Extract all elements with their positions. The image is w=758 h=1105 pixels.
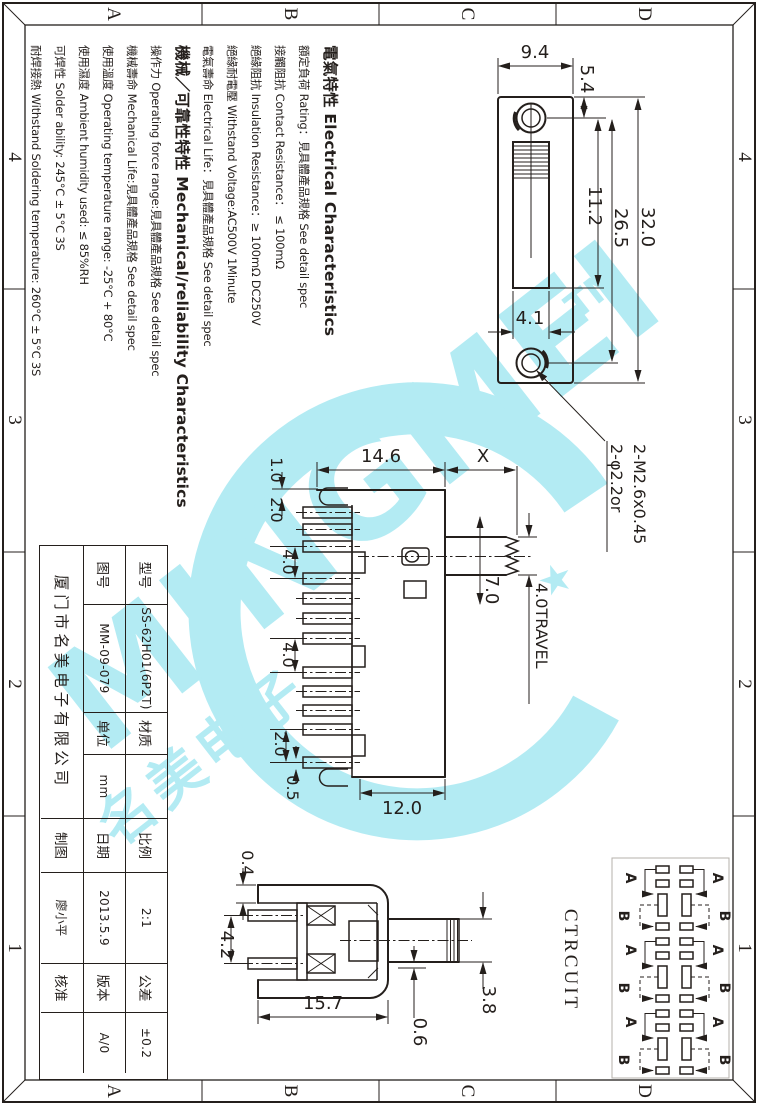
dim-front-slider-width: 4.1 <box>516 308 545 329</box>
grid-label-bottom-c: C <box>457 1085 478 1098</box>
drawing-number-value: MM-09-079 <box>83 605 125 713</box>
dim-section-4: 0.6 <box>409 1018 430 1047</box>
pole-label-b: B <box>615 911 631 922</box>
hole-note-line1: 2-φ2.2or <box>607 444 626 513</box>
spec-line: 操作力 Operating force range:見具體產品規格 See de… <box>144 45 168 477</box>
material-value <box>125 755 167 819</box>
pole-label-b: B <box>615 1055 631 1066</box>
pole-label-a: A <box>622 945 638 956</box>
grid-label-left-2: 2 <box>4 679 25 689</box>
hole-note-line2: 2-M2.6x0.45 <box>630 444 649 544</box>
terminal-pins <box>296 507 360 768</box>
pole-label-b: B <box>716 911 732 922</box>
date-value: 2013.5.9 <box>83 873 125 964</box>
title-block-label-drawing-no: 图号 <box>83 546 125 605</box>
grid-label-left-1: 1 <box>4 943 25 953</box>
title-block-label-unit: 单位 <box>83 713 125 755</box>
spec-line: 接觸阻抗 Contact Resistance： ≤ 100mΩ <box>268 45 292 477</box>
pole-label-b: B <box>615 983 631 994</box>
dim-side-6: 0.5 <box>283 775 302 800</box>
dim-front-hole-offset: 5.4 <box>576 65 597 94</box>
actuator-knurl-zigzag <box>506 537 518 575</box>
dim-side-width: 14.6 <box>361 446 401 467</box>
scale-value: 2:1 <box>125 873 167 964</box>
spec-line: 絕緣耐電壓 Withstand Voltage:AC500V 1Minute <box>220 45 244 477</box>
front-view-drawing: 9.4 5.4 11.2 26.5 32.0 4.1 2-φ2.2or 2-M2… <box>488 42 658 552</box>
title-block-label-tolerance: 公差 <box>125 964 167 1013</box>
tolerance-value: ±0.2 <box>125 1013 167 1073</box>
contact-terminals <box>307 906 335 973</box>
dim-side-5: 2.0 <box>271 731 290 756</box>
grid-label-top-b: B <box>280 8 301 21</box>
spec-line: 可焊性 Solder ability: 245°C ± 5°C 3S <box>48 45 72 477</box>
grid-label-top-a: A <box>103 7 124 21</box>
engineering-drawing-sheet: MINGMEI TM 名美电子 ★ <box>0 0 758 1105</box>
revision-value: A/0 <box>83 1013 125 1073</box>
dim-front-width: 9.4 <box>521 42 550 63</box>
pole-label-a: A <box>622 1017 638 1028</box>
spec-heading-mechanical: 機械／可靠性特性 Mechanical/reliability Characte… <box>168 45 196 477</box>
pole-label-a: A <box>709 945 725 956</box>
pole-label-b: B <box>716 1055 732 1066</box>
pole-label-b: B <box>716 983 732 994</box>
grid-label-top-d: D <box>634 7 655 21</box>
dim-section-1: 0.4 <box>238 850 257 875</box>
dim-front-slot: 11.2 <box>584 186 605 226</box>
grid-label-right-4: 4 <box>734 152 755 162</box>
grid-label-right-3: 3 <box>734 415 755 425</box>
title-block: 型号 SS-62H01(6P2T) 材质 比例 2:1 公差 ±0.2 图号 M… <box>39 545 168 1080</box>
pole-label-a: A <box>709 1017 725 1028</box>
pole-label-a: A <box>622 873 638 884</box>
circuit-diagram: CTRCUIT A B A B A B A B A B A B <box>560 858 732 1078</box>
dim-side-travel: 4.0TRAVEL <box>532 583 551 669</box>
dim-side-3: 4.0 <box>279 549 298 574</box>
spec-heading-electrical: 電氣特性 Electrical Characteristics <box>316 45 344 477</box>
grid-label-bottom-d: D <box>634 1084 655 1098</box>
title-block-label-revision: 版本 <box>83 964 125 1013</box>
dim-side-4: 4.0 <box>279 642 298 667</box>
dim-section-3: 15.7 <box>303 993 343 1014</box>
title-block-label-material: 材质 <box>125 713 167 755</box>
spec-line: 額定負荷 Rating：見具體產品規格 See detail spec <box>292 45 316 477</box>
spec-line: 使用濕度 Ambient humidity used: ≤ 85%RH <box>72 45 96 477</box>
spec-line: 電氣壽命 Electrical Life：見具體產品規格 See detail … <box>196 45 220 477</box>
dim-side-x: X <box>477 446 489 467</box>
dim-side-7: 7.0 <box>481 576 502 605</box>
company-name: 厦门市名美电子有限公司 <box>41 546 83 819</box>
circuit-title: CTRCUIT <box>560 909 581 1011</box>
dim-section-2: 4.2 <box>216 931 237 960</box>
section-view-drawing: 0.4 4.2 15.7 0.6 3.8 <box>216 850 499 1046</box>
dim-front-hole-span: 26.5 <box>610 208 631 248</box>
grid-label-right-2: 2 <box>734 679 755 689</box>
pole-label-a: A <box>709 873 725 884</box>
spec-line: 耐焊接熱 Withstand Soldering temperature: 26… <box>24 45 48 477</box>
unit-value: mm <box>83 755 125 819</box>
approved-by-value <box>41 1013 83 1073</box>
dim-side-2: 2.0 <box>267 497 286 522</box>
title-block-label-approved-by: 核准 <box>41 964 83 1013</box>
dim-section-5: 3.8 <box>478 986 499 1015</box>
grid-label-bottom-a: A <box>103 1084 124 1098</box>
dim-side-bottom-width: 12.0 <box>382 798 422 819</box>
side-view-drawing: 14.6 X 1.0 2.0 4.0 4.0 2.0 0.5 <box>267 446 551 819</box>
grid-label-bottom-b: B <box>280 1085 301 1098</box>
grid-label-right-1: 1 <box>734 943 755 953</box>
drawn-by-value: 廖小平 <box>41 873 83 964</box>
dim-front-height: 32.0 <box>637 207 658 247</box>
characteristics-spec-block: 電氣特性 Electrical Characteristics 額定負荷 Rat… <box>24 45 344 477</box>
title-block-label-drawn-by: 制图 <box>41 819 83 873</box>
title-block-label-scale: 比例 <box>125 819 167 873</box>
model-number-value: SS-62H01(6P2T) <box>125 605 167 713</box>
grid-label-left-4: 4 <box>4 152 25 162</box>
grid-label-top-c: C <box>457 8 478 21</box>
spec-line: 絕緣阻抗 Insulation Resistance：≥ 100mΩ DC250… <box>244 45 268 477</box>
spec-line: 機械壽命 Mechanical Life:見具體產品規格 See detail … <box>120 45 144 477</box>
spec-line: 使用溫度 Operating temperature range: -25°C … <box>96 45 120 477</box>
title-block-label-model: 型号 <box>125 546 167 605</box>
title-block-label-date: 日期 <box>83 819 125 873</box>
grid-label-left-3: 3 <box>4 415 25 425</box>
